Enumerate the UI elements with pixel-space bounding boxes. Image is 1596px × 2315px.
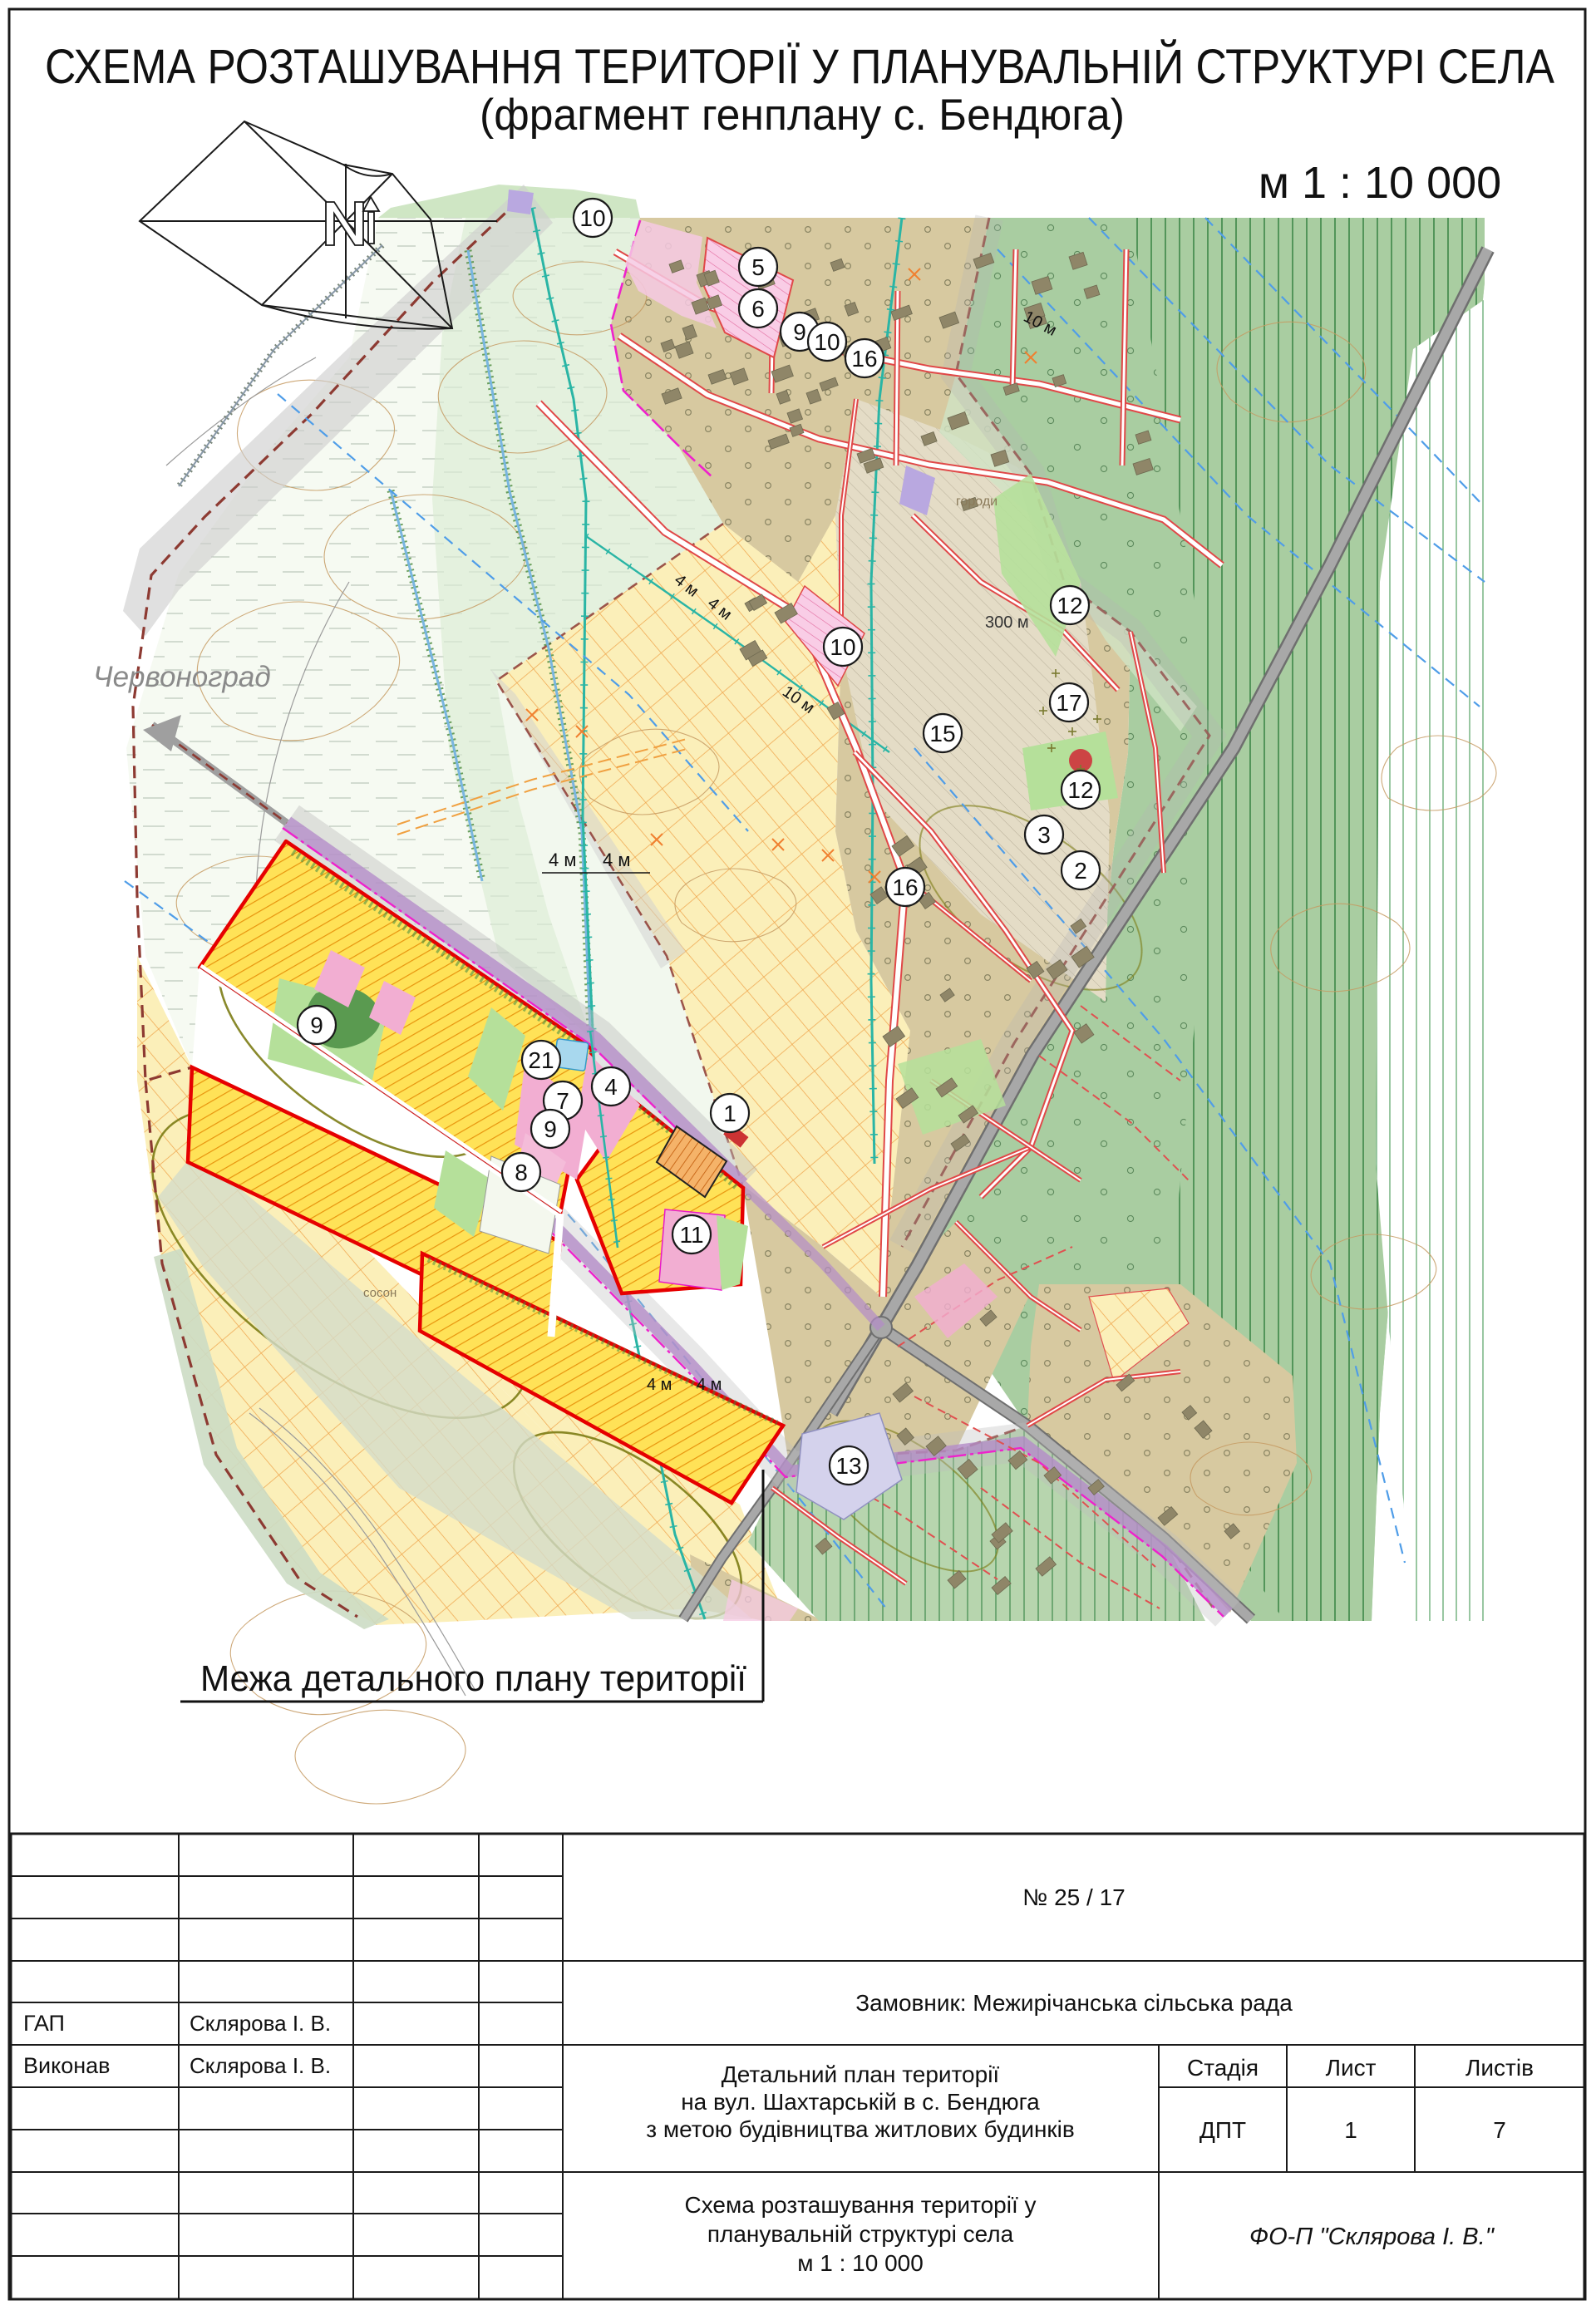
svg-text:10: 10 bbox=[579, 205, 605, 231]
svg-text:Листів: Листів bbox=[1465, 2055, 1534, 2081]
svg-text:11: 11 bbox=[679, 1222, 703, 1248]
svg-text:ДПТ: ДПТ bbox=[1199, 2117, 1246, 2143]
svg-text:5: 5 bbox=[751, 254, 765, 280]
svg-text:Детальний план території: Детальний план території bbox=[722, 2061, 1000, 2087]
svg-text:16: 16 bbox=[851, 346, 877, 372]
svg-text:СХЕМА РОЗТАШУВАННЯ ТЕРИТОРІЇ У: СХЕМА РОЗТАШУВАННЯ ТЕРИТОРІЇ У ПЛАНУВАЛЬ… bbox=[45, 40, 1554, 94]
svg-text:9: 9 bbox=[793, 319, 806, 345]
svg-text:8: 8 bbox=[515, 1160, 528, 1185]
svg-text:Стадія: Стадія bbox=[1187, 2055, 1259, 2081]
svg-text:з метою будівництва житлових б: з метою будівництва житлових будинків bbox=[646, 2116, 1075, 2142]
svg-text:7: 7 bbox=[556, 1088, 569, 1114]
svg-text:4 м: 4 м bbox=[603, 850, 630, 870]
svg-text:6: 6 bbox=[751, 296, 765, 322]
svg-text:4: 4 bbox=[604, 1074, 618, 1100]
svg-text:12: 12 bbox=[1057, 593, 1082, 618]
svg-text:городи: городи bbox=[956, 495, 997, 509]
svg-text:Межа детального плану територі: Межа детального плану території bbox=[200, 1658, 746, 1699]
svg-text:сосон: сосон bbox=[363, 1286, 397, 1300]
svg-text:ГАП: ГАП bbox=[23, 2011, 65, 2036]
svg-text:(фрагмент генплану с. Бендюга): (фрагмент генплану с. Бендюга) bbox=[480, 91, 1125, 140]
svg-text:№ 25 / 17: № 25 / 17 bbox=[1022, 1884, 1125, 1910]
svg-text:16: 16 bbox=[892, 874, 918, 900]
svg-text:Склярова І. В.: Склярова І. В. bbox=[190, 2053, 331, 2078]
svg-text:13: 13 bbox=[835, 1453, 861, 1479]
svg-text:2: 2 bbox=[1074, 858, 1087, 884]
svg-text:Виконав: Виконав bbox=[23, 2053, 111, 2078]
svg-text:4 м: 4 м bbox=[647, 1376, 672, 1394]
svg-text:9: 9 bbox=[544, 1116, 557, 1142]
svg-text:3: 3 bbox=[1037, 822, 1051, 848]
svg-text:Схема розташування території у: Схема розташування території у bbox=[684, 2192, 1036, 2218]
svg-text:Склярова І. В.: Склярова І. В. bbox=[190, 2011, 331, 2036]
svg-text:1: 1 bbox=[723, 1101, 736, 1126]
svg-text:Замовник: Межирічанська сільсь: Замовник: Межирічанська сільська рада bbox=[855, 1990, 1293, 2016]
svg-text:9: 9 bbox=[310, 1012, 323, 1038]
svg-text:м 1 : 10 000: м 1 : 10 000 bbox=[1259, 158, 1501, 208]
svg-text:10: 10 bbox=[814, 329, 840, 355]
svg-text:21: 21 bbox=[528, 1047, 554, 1073]
svg-text:Червоноград: Червоноград bbox=[93, 661, 271, 693]
svg-text:10: 10 bbox=[830, 634, 855, 660]
svg-text:300 м: 300 м bbox=[985, 613, 1029, 632]
svg-text:12: 12 bbox=[1067, 777, 1093, 803]
svg-text:1: 1 bbox=[1344, 2117, 1357, 2143]
svg-text:4 м: 4 м bbox=[697, 1376, 722, 1394]
svg-text:Лист: Лист bbox=[1326, 2055, 1377, 2081]
svg-text:7: 7 bbox=[1493, 2117, 1506, 2143]
svg-text:17: 17 bbox=[1056, 690, 1081, 716]
svg-text:на вул. Шахтарській в с. Бендю: на вул. Шахтарській в с. Бендюга bbox=[681, 2089, 1040, 2115]
svg-text:15: 15 bbox=[929, 721, 955, 746]
svg-text:м 1 : 10 000: м 1 : 10 000 bbox=[797, 2250, 924, 2276]
svg-text:планувальній структурі села: планувальній структурі села bbox=[707, 2221, 1014, 2247]
svg-text:ФО-П "Склярова І. В.": ФО-П "Склярова І. В." bbox=[1249, 2224, 1495, 2250]
svg-text:4 м: 4 м bbox=[549, 850, 576, 870]
